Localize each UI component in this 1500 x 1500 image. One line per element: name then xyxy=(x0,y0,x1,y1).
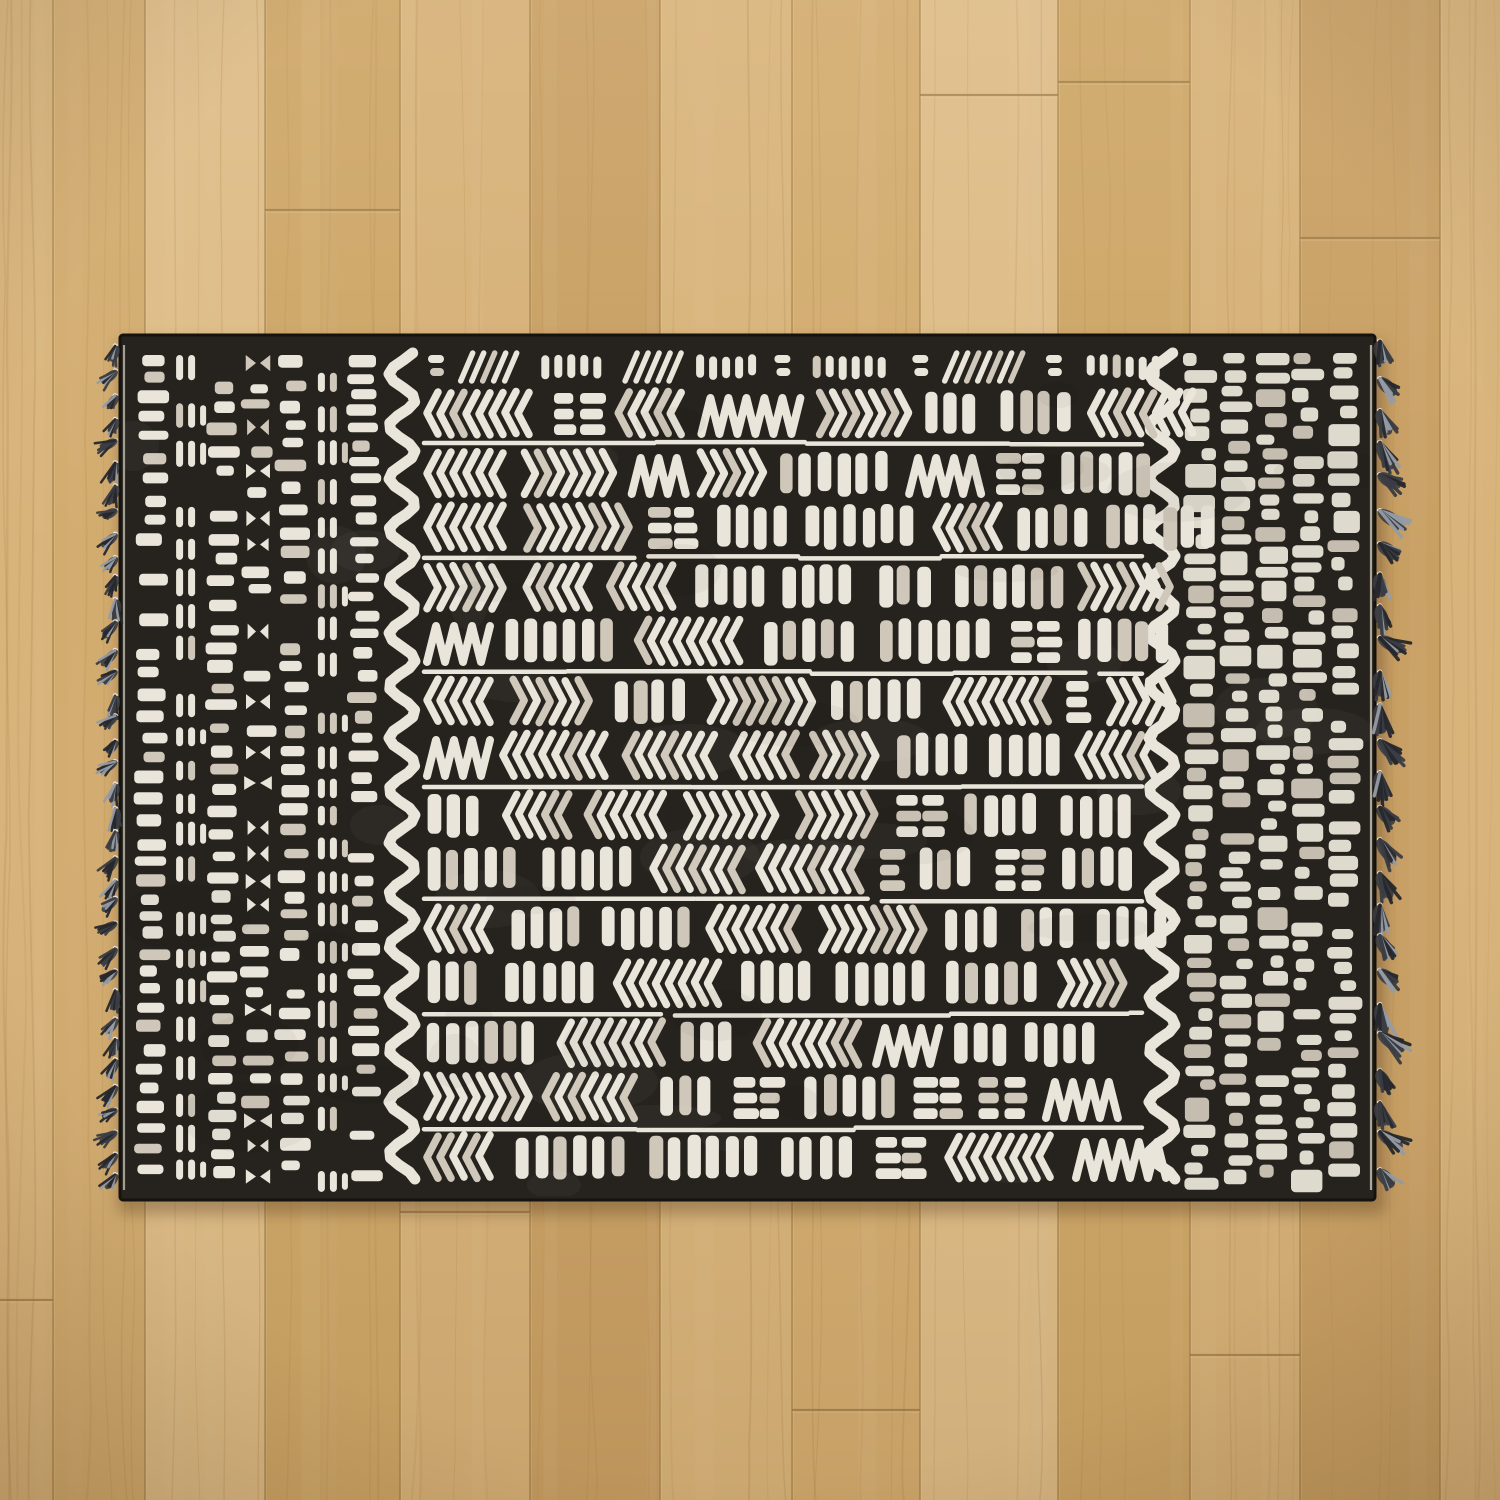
scene-canvas xyxy=(0,0,1500,1500)
photo-scene xyxy=(0,0,1500,1500)
photo-vignette xyxy=(0,0,1500,1500)
